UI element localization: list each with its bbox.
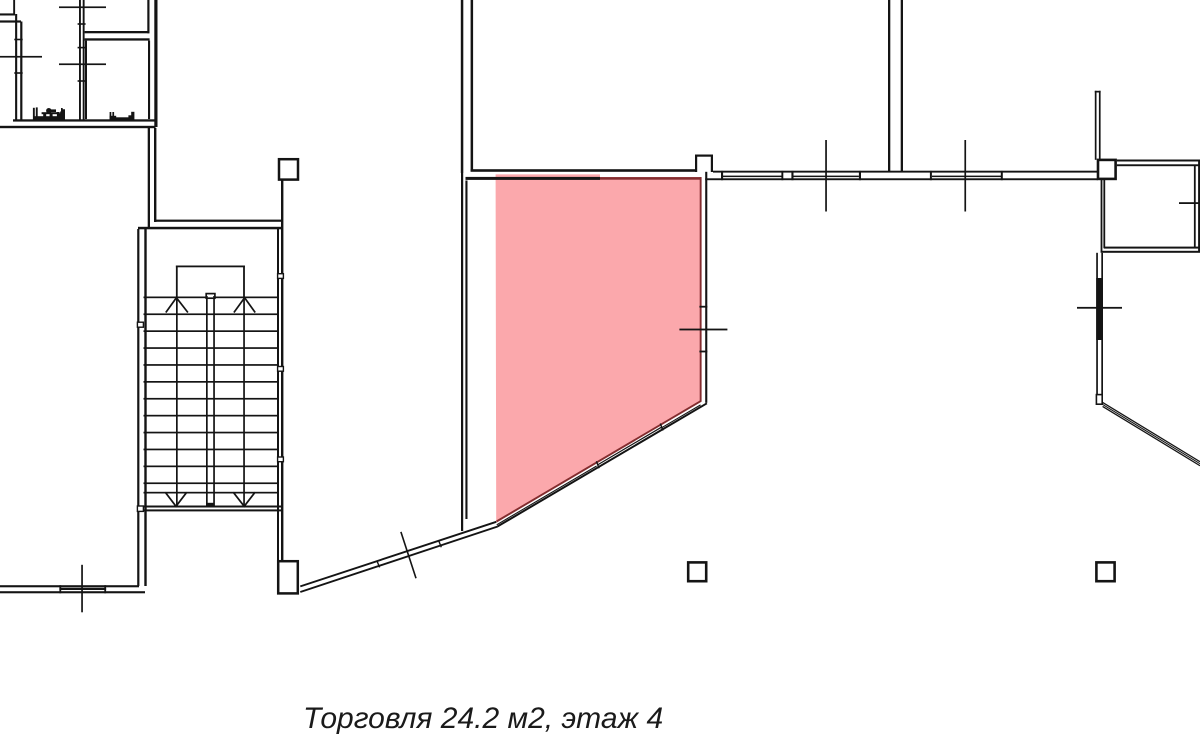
- svg-text:Торговля 24.2 м2, этаж 4: Торговля 24.2 м2, этаж 4: [303, 702, 663, 735]
